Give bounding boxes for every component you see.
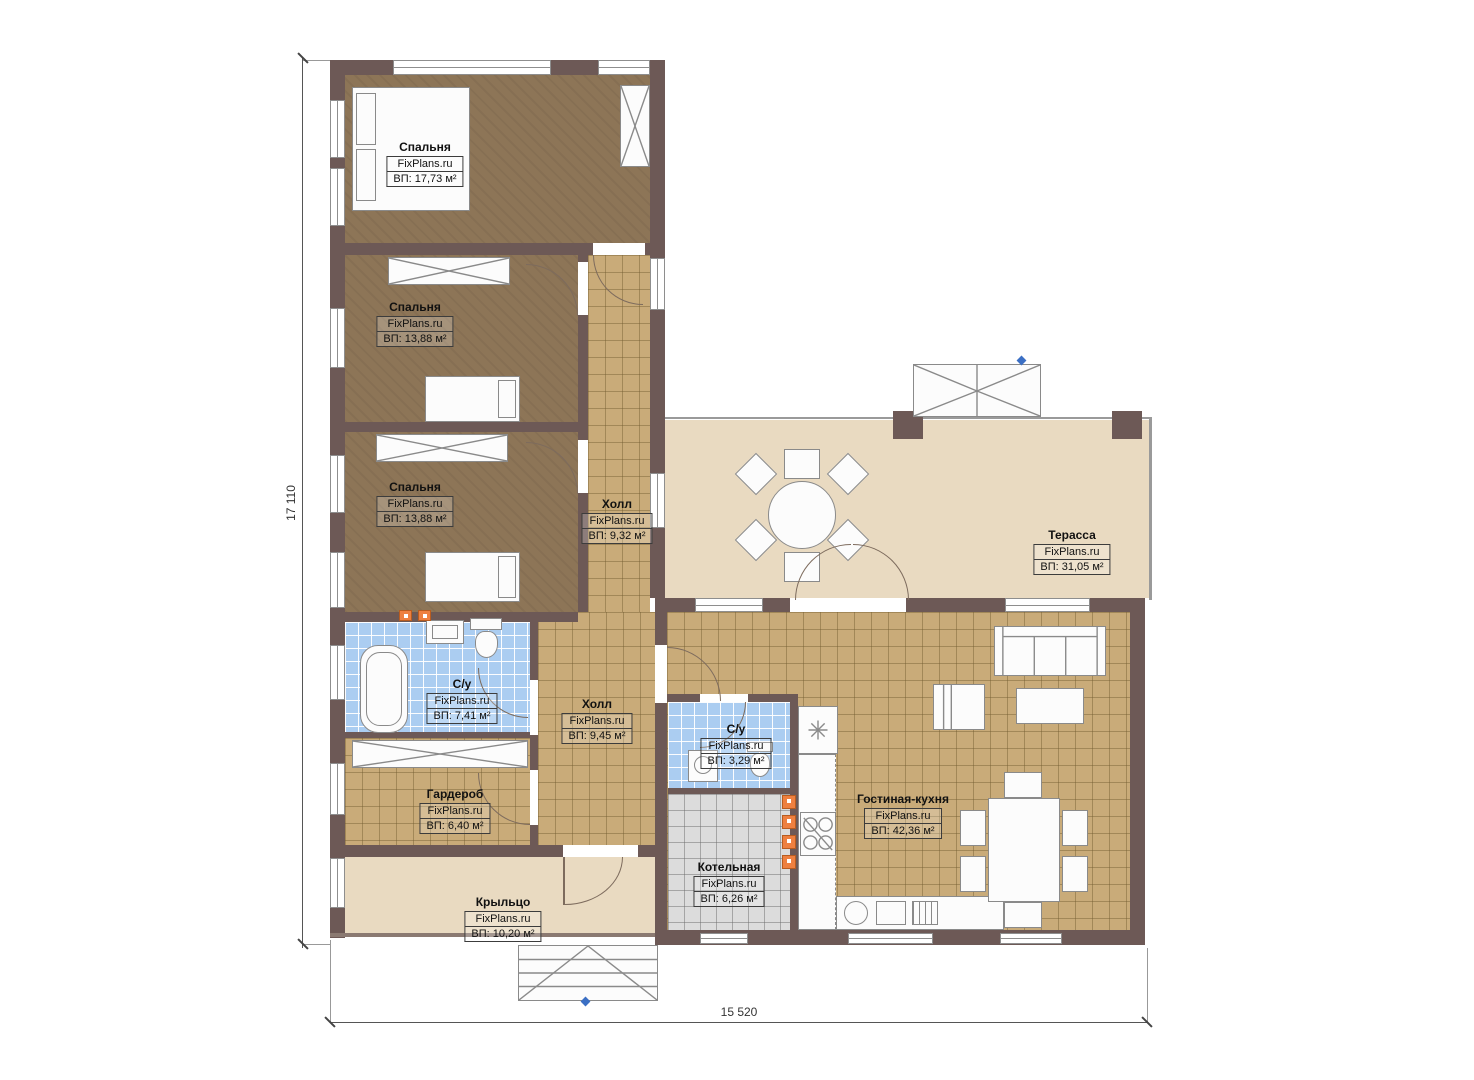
door-opening bbox=[530, 770, 538, 825]
room-label-bedroom-2: Спальня FixPlans.ru ВП: 13,88 м² bbox=[376, 300, 453, 347]
room-brand: FixPlans.ru bbox=[581, 513, 652, 529]
room-name: Гардероб bbox=[419, 787, 490, 801]
chair bbox=[960, 810, 986, 846]
room-name: Холл bbox=[561, 697, 632, 711]
room-info-box: FixPlans.ru ВП: 13,88 м² bbox=[376, 496, 453, 527]
dimension-value-horizontal: 15 520 bbox=[721, 1005, 758, 1019]
wardrobe-cabinet bbox=[620, 85, 650, 167]
dimension-extension bbox=[330, 940, 331, 1022]
wall-bed2-bed3 bbox=[345, 422, 578, 432]
sink-drainer bbox=[912, 901, 938, 925]
radiator bbox=[418, 610, 431, 621]
room-brand: FixPlans.ru bbox=[561, 713, 632, 729]
room-brand: FixPlans.ru bbox=[864, 808, 941, 824]
window bbox=[330, 763, 345, 815]
pillow bbox=[356, 93, 376, 145]
chair bbox=[1062, 810, 1088, 846]
room-area: ВП: 9,45 м² bbox=[561, 729, 632, 744]
room-name: Терасса bbox=[1033, 528, 1110, 542]
room-area: ВП: 31,05 м² bbox=[1033, 560, 1110, 575]
room-label-bedroom-1: Спальня FixPlans.ru ВП: 17,73 м² bbox=[386, 140, 463, 187]
door-leaf bbox=[563, 857, 565, 905]
terrace-stairs bbox=[913, 364, 1041, 417]
window bbox=[330, 455, 345, 513]
room-area: ВП: 42,36 м² bbox=[864, 824, 941, 839]
room-info-box: FixPlans.ru ВП: 31,05 м² bbox=[1033, 544, 1110, 575]
floor-plan-page: { "branding": "FixPlans.ru", "dimensions… bbox=[0, 0, 1474, 1080]
room-brand: FixPlans.ru bbox=[376, 316, 453, 332]
room-label-bedroom-3: Спальня FixPlans.ru ВП: 13,88 м² bbox=[376, 480, 453, 527]
room-info-box: FixPlans.ru ВП: 13,88 м² bbox=[376, 316, 453, 347]
fridge bbox=[798, 706, 838, 754]
room-area: ВП: 10,20 м² bbox=[464, 927, 541, 942]
room-name: Котельная bbox=[693, 860, 764, 874]
terrace-right-edge bbox=[1149, 417, 1152, 600]
room-label-living-kitchen: Гостиная-кухня FixPlans.ru ВП: 42,36 м² bbox=[857, 792, 949, 839]
room-info-box: FixPlans.ru ВП: 10,20 м² bbox=[464, 911, 541, 942]
window bbox=[695, 598, 763, 612]
window bbox=[700, 933, 748, 944]
door-opening bbox=[578, 262, 588, 315]
window bbox=[330, 645, 345, 700]
vent-shaft bbox=[782, 815, 796, 829]
window bbox=[330, 168, 345, 226]
door-opening bbox=[578, 440, 588, 493]
room-brand: FixPlans.ru bbox=[426, 693, 497, 709]
wardrobe-cabinet bbox=[376, 434, 508, 462]
wall-living-right bbox=[1130, 598, 1145, 930]
room-label-hall-1: Холл FixPlans.ru ВП: 9,32 м² bbox=[581, 497, 652, 544]
chair bbox=[960, 856, 986, 892]
dimension-tick bbox=[297, 52, 308, 63]
chair bbox=[1004, 772, 1042, 798]
pillow bbox=[498, 556, 516, 598]
dimension-line-horizontal bbox=[330, 1022, 1148, 1023]
floor-hall-1 bbox=[588, 255, 650, 612]
room-info-box: FixPlans.ru ВП: 6,40 м² bbox=[419, 803, 490, 834]
radiator bbox=[399, 610, 412, 621]
room-info-box: FixPlans.ru ВП: 6,26 м² bbox=[693, 876, 764, 907]
room-info-box: FixPlans.ru ВП: 9,45 м² bbox=[561, 713, 632, 744]
room-label-wardrobe: Гардероб FixPlans.ru ВП: 6,40 м² bbox=[419, 787, 490, 834]
room-brand: FixPlans.ru bbox=[700, 738, 771, 754]
toilet-bowl bbox=[475, 631, 498, 658]
room-area: ВП: 6,26 м² bbox=[693, 892, 764, 907]
kitchen-sink-round bbox=[844, 901, 868, 925]
dimension-extension bbox=[1147, 948, 1148, 1022]
room-info-box: FixPlans.ru ВП: 9,32 м² bbox=[581, 513, 652, 544]
floor-plan-canvas: Спальня FixPlans.ru ВП: 17,73 м² Спальня… bbox=[0, 0, 1474, 1080]
wall-bath2-right bbox=[790, 694, 798, 930]
room-label-bathroom-2: С/у FixPlans.ru ВП: 3,29 м² bbox=[700, 722, 771, 769]
room-info-box: FixPlans.ru ВП: 7,41 м² bbox=[426, 693, 497, 724]
window bbox=[650, 258, 665, 310]
room-label-bathroom-1: С/у FixPlans.ru ВП: 7,41 м² bbox=[426, 677, 497, 724]
vent-shaft bbox=[782, 855, 796, 869]
pillow bbox=[356, 149, 376, 201]
room-info-box: FixPlans.ru ВП: 42,36 м² bbox=[864, 808, 941, 839]
bathtub-basin bbox=[366, 652, 402, 726]
room-area: ВП: 3,29 м² bbox=[700, 754, 771, 769]
closet-unit bbox=[352, 740, 528, 768]
wall-bath1-wardrobe bbox=[345, 732, 530, 738]
room-label-porch: Крыльцо FixPlans.ru ВП: 10,20 м² bbox=[464, 895, 541, 942]
window bbox=[598, 60, 650, 75]
chair bbox=[1062, 856, 1088, 892]
sofa bbox=[994, 626, 1106, 676]
room-area: ВП: 13,88 м² bbox=[376, 512, 453, 527]
room-name: Гостиная-кухня bbox=[857, 792, 949, 806]
window bbox=[848, 933, 933, 944]
dimension-value-vertical: 17 110 bbox=[284, 485, 298, 521]
door-opening bbox=[530, 680, 538, 735]
terrace-door-opening bbox=[790, 598, 906, 612]
window bbox=[330, 100, 345, 158]
room-brand: FixPlans.ru bbox=[386, 156, 463, 172]
room-name: С/у bbox=[426, 677, 497, 691]
room-name: Крыльцо bbox=[464, 895, 541, 909]
room-area: ВП: 13,88 м² bbox=[376, 332, 453, 347]
room-info-box: FixPlans.ru ВП: 17,73 м² bbox=[386, 156, 463, 187]
chair bbox=[1004, 902, 1042, 928]
vent-shaft bbox=[782, 835, 796, 849]
room-brand: FixPlans.ru bbox=[376, 496, 453, 512]
porch-steps bbox=[518, 945, 658, 1001]
room-label-terrace: Терасса FixPlans.ru ВП: 31,05 м² bbox=[1033, 528, 1110, 575]
toilet-tank bbox=[470, 618, 502, 630]
room-name: Спальня bbox=[376, 480, 453, 494]
stove bbox=[800, 812, 836, 856]
coffee-table bbox=[1016, 688, 1084, 724]
room-brand: FixPlans.ru bbox=[1033, 544, 1110, 560]
room-brand: FixPlans.ru bbox=[693, 876, 764, 892]
window bbox=[1000, 933, 1062, 944]
wall-bath2-boiler bbox=[668, 788, 790, 794]
window bbox=[1005, 598, 1090, 612]
room-label-hall-2: Холл FixPlans.ru ВП: 9,45 м² bbox=[561, 697, 632, 744]
room-name: Спальня bbox=[376, 300, 453, 314]
terrace-column-right bbox=[1112, 411, 1142, 439]
window bbox=[330, 858, 345, 908]
door-opening bbox=[655, 645, 667, 703]
room-name: Спальня bbox=[386, 140, 463, 154]
room-area: ВП: 17,73 м² bbox=[386, 172, 463, 187]
armchair bbox=[933, 684, 985, 730]
wardrobe-cabinet bbox=[388, 257, 510, 285]
sink-basin bbox=[432, 625, 458, 639]
room-area: ВП: 6,40 м² bbox=[419, 819, 490, 834]
room-brand: FixPlans.ru bbox=[464, 911, 541, 927]
door-opening bbox=[563, 845, 638, 857]
room-area: ВП: 9,32 м² bbox=[581, 529, 652, 544]
dining-table bbox=[988, 798, 1060, 902]
room-info-box: FixPlans.ru ВП: 3,29 м² bbox=[700, 738, 771, 769]
kitchen-sink-basin bbox=[876, 901, 906, 925]
window bbox=[330, 308, 345, 368]
door-opening bbox=[593, 243, 645, 255]
vent-shaft bbox=[782, 795, 796, 809]
window bbox=[330, 552, 345, 608]
dimension-line-vertical bbox=[302, 58, 303, 948]
dimension-extension bbox=[303, 944, 330, 945]
window bbox=[393, 60, 551, 75]
room-name: С/у bbox=[700, 722, 771, 736]
round-dining-table bbox=[768, 481, 836, 549]
room-area: ВП: 7,41 м² bbox=[426, 709, 497, 724]
chair bbox=[784, 449, 820, 479]
room-name: Холл bbox=[581, 497, 652, 511]
room-label-boiler-room: Котельная FixPlans.ru ВП: 6,26 м² bbox=[693, 860, 764, 907]
pillow bbox=[498, 380, 516, 418]
room-brand: FixPlans.ru bbox=[419, 803, 490, 819]
